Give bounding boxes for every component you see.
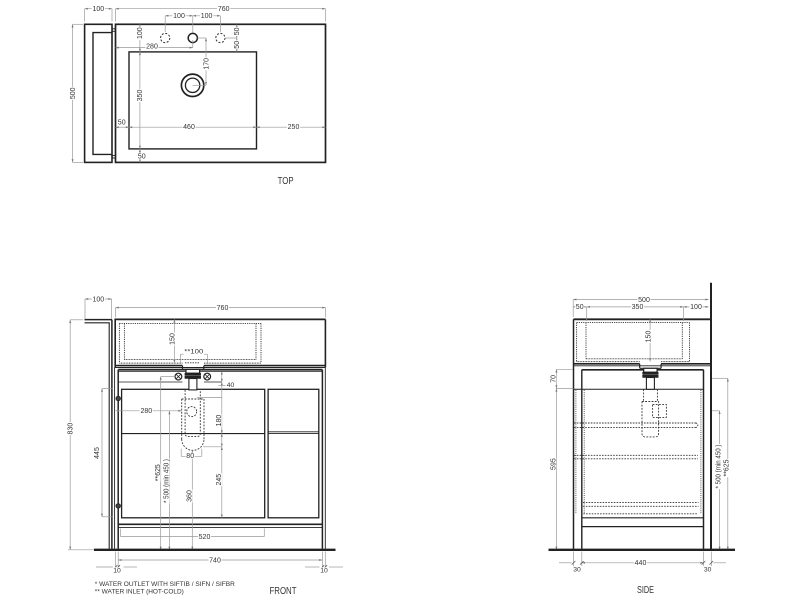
svg-text:245: 245 <box>216 474 223 486</box>
svg-text:180: 180 <box>216 415 223 427</box>
svg-text:10: 10 <box>320 568 328 575</box>
svg-text:100: 100 <box>201 13 213 20</box>
svg-text:830: 830 <box>67 423 74 435</box>
svg-text:* WATER OUTLET WITH SIFTIB /: * WATER OUTLET WITH SIFTIB / SIFN / SIFB… <box>95 581 235 588</box>
svg-text:50: 50 <box>576 304 584 311</box>
svg-text:445: 445 <box>94 447 101 459</box>
svg-text:50: 50 <box>234 27 241 35</box>
svg-text:100: 100 <box>173 13 185 20</box>
svg-text:30: 30 <box>573 566 581 573</box>
svg-text:280: 280 <box>140 408 152 415</box>
svg-text:FRONT: FRONT <box>270 586 297 597</box>
svg-text:40: 40 <box>227 382 235 389</box>
svg-text:500: 500 <box>70 87 77 99</box>
svg-text:520: 520 <box>199 534 211 541</box>
svg-text:100: 100 <box>137 27 144 39</box>
svg-text:50: 50 <box>138 154 146 161</box>
svg-text:30: 30 <box>704 566 712 573</box>
svg-text:440: 440 <box>635 560 647 567</box>
svg-text:350: 350 <box>137 90 144 102</box>
svg-text:740: 740 <box>209 557 221 564</box>
svg-text:10: 10 <box>113 568 121 575</box>
svg-text:500: 500 <box>638 297 650 304</box>
svg-text:50: 50 <box>118 120 126 127</box>
svg-text:760: 760 <box>217 305 229 312</box>
svg-text:280: 280 <box>146 44 158 51</box>
svg-text:** WATER INLET (HOT-COLD): ** WATER INLET (HOT-COLD) <box>95 589 184 596</box>
svg-text:350: 350 <box>632 304 644 311</box>
svg-text:100: 100 <box>92 296 104 303</box>
svg-text:250: 250 <box>288 124 300 131</box>
svg-text:150: 150 <box>645 331 652 343</box>
svg-text:SIDE: SIDE <box>637 585 654 596</box>
svg-text:TOP: TOP <box>278 176 294 187</box>
svg-text:595: 595 <box>550 458 557 470</box>
svg-text:100: 100 <box>690 304 702 311</box>
svg-text:**625: **625 <box>723 459 730 476</box>
svg-text:460: 460 <box>183 124 195 131</box>
svg-text:70: 70 <box>550 375 557 383</box>
svg-text:50: 50 <box>234 41 241 49</box>
svg-text:**100: **100 <box>184 349 203 356</box>
svg-text:100: 100 <box>92 6 104 13</box>
svg-text:* 500 (min 450 ): * 500 (min 450 ) <box>164 459 171 503</box>
svg-text:**625: **625 <box>155 464 162 481</box>
svg-text:* 500 (min 450 ): * 500 (min 450 ) <box>715 445 722 489</box>
svg-text:760: 760 <box>218 6 230 13</box>
svg-text:150: 150 <box>170 333 177 345</box>
svg-text:360: 360 <box>187 490 194 502</box>
svg-text:170: 170 <box>203 58 210 70</box>
svg-text:80: 80 <box>186 453 194 460</box>
